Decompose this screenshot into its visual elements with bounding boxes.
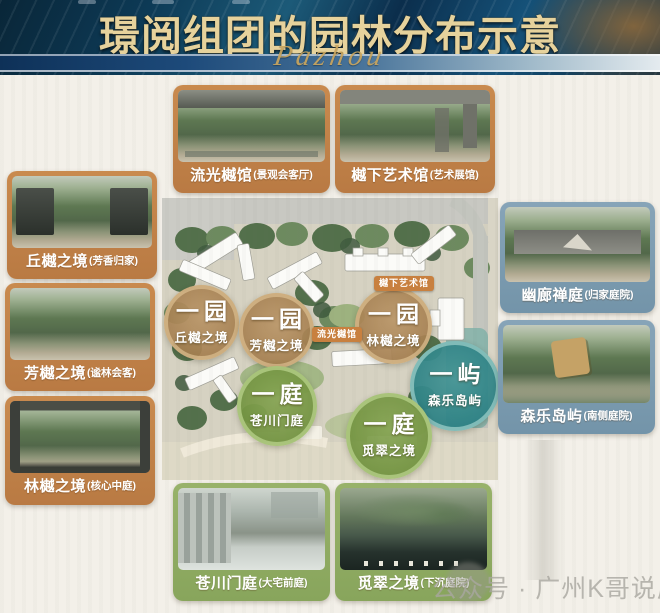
caption-note: (芳香归家) [89,253,138,268]
photo-caption: 芳樾之境 (谧林会客) [10,360,150,385]
photo-caption: 苍川门庭 (大宅前庭) [178,570,325,595]
zone-badge: 一屿 [425,363,486,386]
zone-name: 林樾之境 [366,330,420,349]
caption-note: (谧林会客) [87,365,136,380]
zone-name: 丘樾之境 [174,327,228,346]
photo-card-art-pavilion: 樾下艺术馆 (艺术展馆) [335,85,495,193]
pazhou-script-text: Pazhou [272,40,389,73]
photo-caption: 林樾之境 (核心中庭) [10,473,150,498]
caption-name: 芳樾之境 [24,362,86,383]
zone-name: 苍川门庭 [250,410,304,429]
map-tag-art-pavilion: 樾下艺术馆 [374,276,434,291]
garden-photo [340,488,487,570]
zone-badge: 一庭 [359,413,420,436]
poster-garden-distribution: 璟阅组团的园林分布示意 Pazhou [0,0,660,613]
zone-fangyue: 一园 芳樾之境 [239,293,314,368]
zone-name: 觅翠之境 [362,440,416,459]
map-tag-liuguang-hall: 流光樾馆 [312,327,362,342]
zone-name: 森乐岛屿 [428,390,482,409]
photo-card-fangyue: 芳樾之境 (谧林会客) [5,283,155,391]
photo-card-senle-island: 森乐岛屿 (南侧庭院) [498,320,655,434]
garden-photo [340,90,490,162]
garden-photo [10,288,150,360]
zone-name: 芳樾之境 [249,335,303,354]
caption-name: 森乐岛屿 [520,405,582,426]
photo-caption: 幽廊禅庭 (归家庭院) [505,282,650,307]
caption-note: (归家庭院) [585,287,634,302]
garden-photo [12,176,152,248]
caption-name: 幽廊禅庭 [521,284,583,305]
photo-caption: 森乐岛屿 (南侧庭院) [503,403,650,428]
garden-photo [178,488,325,570]
garden-photo [178,90,325,162]
garden-photo [505,207,650,282]
garden-photo [503,325,650,403]
caption-note: (核心中庭) [87,478,136,493]
zone-badge: 一园 [171,300,232,323]
zone-badge: 一园 [363,303,424,326]
caption-note: (景观会客厅) [253,167,313,182]
photo-card-youlang-court: 幽廊禅庭 (归家庭院) [500,202,655,313]
photo-caption: 樾下艺术馆 (艺术展馆) [340,162,490,187]
caption-name: 林樾之境 [24,475,86,496]
background-streak [524,440,564,580]
zone-cangchuan: 一庭 苍川门庭 [237,366,317,446]
photo-caption: 丘樾之境 (芳香归家) [12,248,152,273]
caption-name: 觅翠之境 [357,572,419,593]
photo-card-qiuyue: 丘樾之境 (芳香归家) [7,171,157,279]
header-banner: 璟阅组团的园林分布示意 Pazhou [0,0,660,75]
watermark-text: 公众号 · 广州K哥说房 [432,569,660,605]
caption-name: 樾下艺术馆 [351,164,429,185]
caption-note: (南侧庭院) [584,408,633,423]
zone-linyue: 一园 林樾之境 [355,287,432,364]
photo-card-linyue: 林樾之境 (核心中庭) [5,396,155,505]
caption-note: (大宅前庭) [259,575,308,590]
photo-card-liuguang-hall: 流光樾馆 (景观会客厅) [173,85,330,193]
caption-note: (艺术展馆) [430,167,479,182]
zone-qiuyue: 一园 丘樾之境 [164,285,239,360]
photo-caption: 流光樾馆 (景观会客厅) [178,162,325,187]
photo-card-cangchuan: 苍川门庭 (大宅前庭) [173,483,330,601]
caption-name: 苍川门庭 [195,572,257,593]
zone-badge: 一庭 [247,383,308,406]
garden-photo [10,401,150,473]
caption-name: 丘樾之境 [26,250,88,271]
zone-badge: 一园 [246,308,307,331]
zone-micui: 一庭 觅翠之境 [346,393,432,479]
caption-name: 流光樾馆 [190,164,252,185]
